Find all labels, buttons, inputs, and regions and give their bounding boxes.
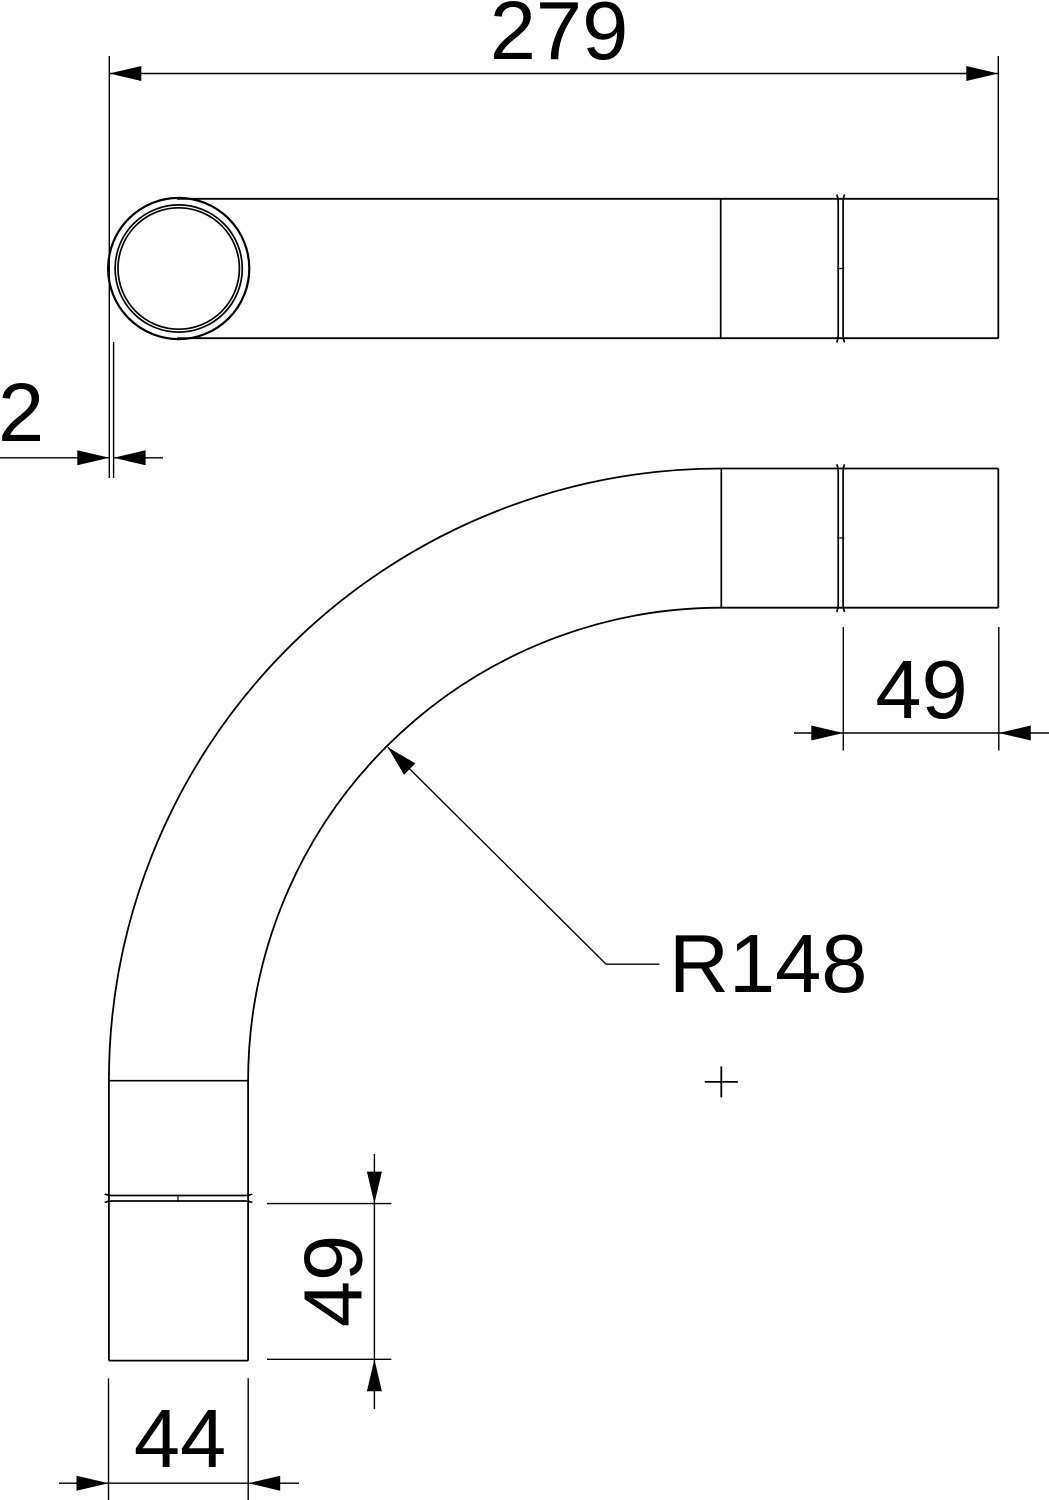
svg-text:2: 2	[0, 366, 44, 459]
svg-text:49: 49	[287, 1235, 380, 1327]
svg-text:49: 49	[875, 643, 967, 736]
svg-text:279: 279	[490, 0, 628, 77]
svg-text:R148: R148	[669, 917, 867, 1010]
svg-text:44: 44	[134, 1392, 226, 1485]
